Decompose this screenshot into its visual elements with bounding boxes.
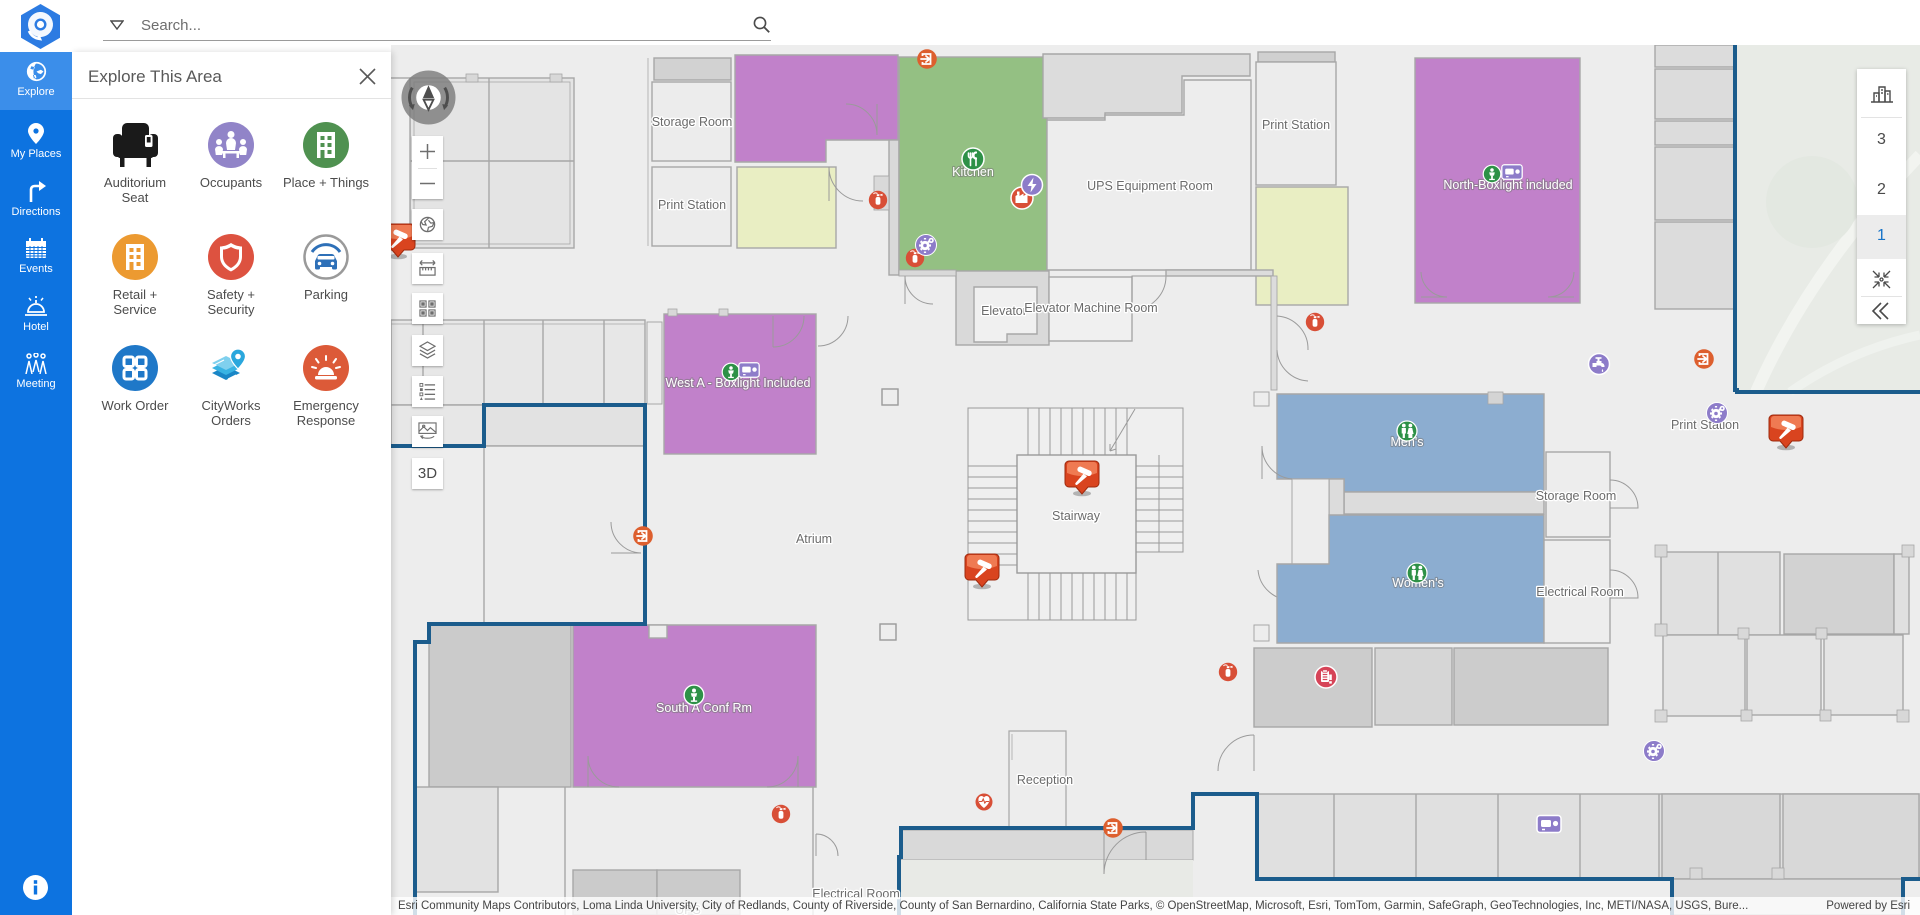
svg-text:Elevator: Elevator — [981, 304, 1027, 318]
svg-text:Reception: Reception — [1017, 773, 1073, 787]
svg-text:Storage Room: Storage Room — [652, 115, 733, 129]
svg-text:South A Conf Rm: South A Conf Rm — [656, 701, 752, 715]
svg-text:Electrical Room: Electrical Room — [1536, 585, 1624, 599]
svg-text:Print Station: Print Station — [658, 198, 726, 212]
svg-text:UPS Equipment Room: UPS Equipment Room — [1087, 179, 1213, 193]
svg-text:Elevator Machine Room: Elevator Machine Room — [1024, 301, 1157, 315]
svg-text:Atrium: Atrium — [796, 532, 832, 546]
svg-text:Print Station: Print Station — [1671, 418, 1739, 432]
svg-text:Storage Room: Storage Room — [1536, 489, 1617, 503]
svg-text:Stairway: Stairway — [1052, 509, 1101, 523]
svg-text:Print Station: Print Station — [1262, 118, 1330, 132]
svg-text:North-Boxlight included: North-Boxlight included — [1443, 178, 1572, 192]
